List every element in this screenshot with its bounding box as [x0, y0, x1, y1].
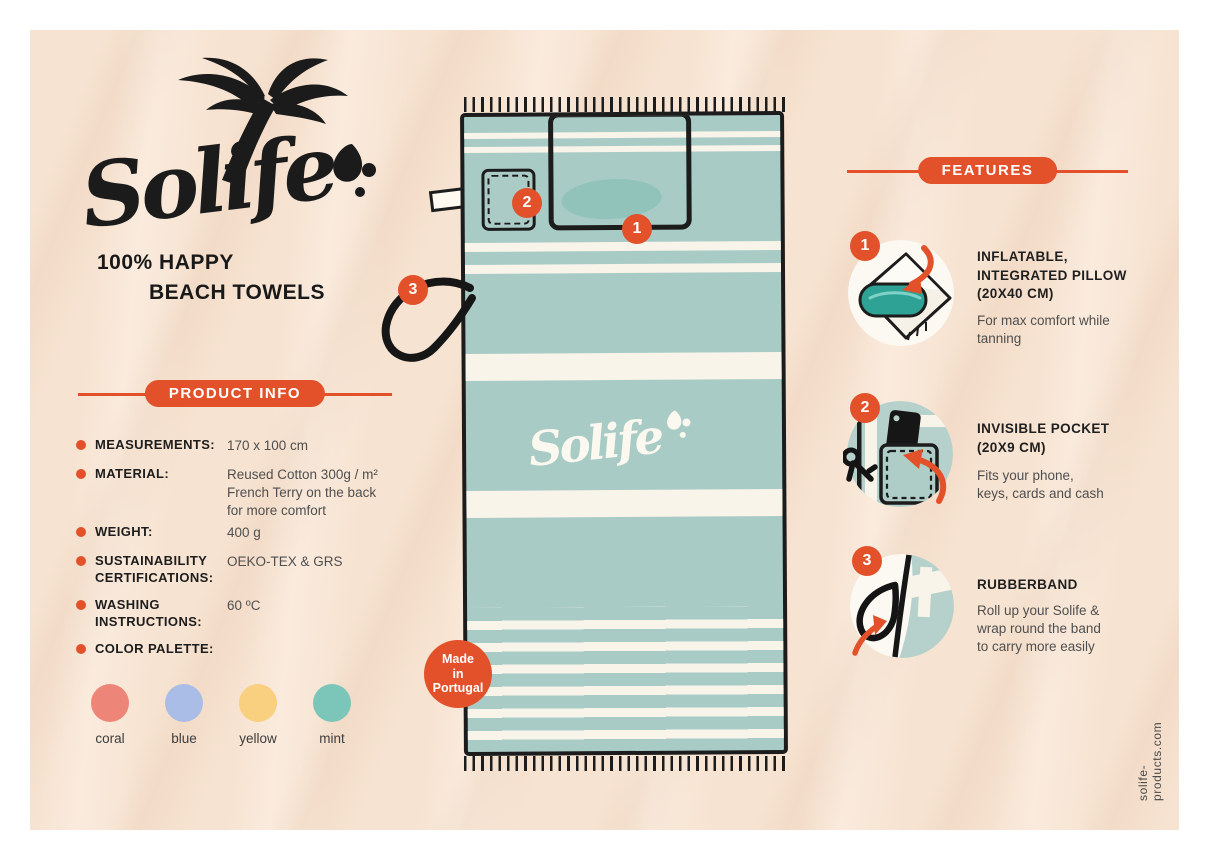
- swatch-dot: [239, 684, 277, 722]
- swatch-label: yellow: [239, 731, 277, 746]
- info-row-material: MATERIAL: Reused Cotton 300g / m² French…: [76, 466, 416, 519]
- info-row-sustainability: SUSTAINABILITY CERTIFICATIONS: OEKO-TEX …: [76, 553, 416, 587]
- swatch-label: blue: [171, 731, 197, 746]
- towel-stripe: [464, 489, 784, 518]
- info-label: WASHING INSTRUCTIONS:: [95, 597, 227, 631]
- towel-stripe: [464, 352, 784, 381]
- made-in-portugal-badge: Made in Portugal: [424, 640, 492, 708]
- feature-title: INVISIBLE POCKET (20X9 CM): [977, 420, 1172, 457]
- towel-brand-print: Solife: [520, 398, 735, 483]
- info-label: SUSTAINABILITY CERTIFICATIONS:: [95, 553, 227, 587]
- info-value: OEKO-TEX & GRS: [227, 553, 416, 571]
- info-row-measurements: MEASUREMENTS: 170 x 100 cm: [76, 437, 416, 455]
- swatch-dot: [165, 684, 203, 722]
- info-label: MATERIAL:: [95, 466, 227, 483]
- towel-badge-band: 3: [398, 275, 428, 305]
- water-drops-icon: [333, 144, 376, 197]
- feature-number-badge: 3: [852, 546, 882, 576]
- swatch-yellow: yellow: [223, 684, 293, 746]
- swatch-coral: coral: [75, 684, 145, 746]
- feature-number-badge: 1: [850, 231, 880, 261]
- product-info-pill: PRODUCT INFO: [145, 380, 325, 407]
- bullet-icon: [76, 644, 86, 654]
- bullet-icon: [76, 440, 86, 450]
- website-url: solife-products.com: [1136, 686, 1164, 801]
- feature-number-badge: 2: [850, 393, 880, 423]
- swatch-mint: mint: [297, 684, 367, 746]
- feature-description: Fits your phone, keys, cards and cash: [977, 467, 1172, 503]
- towel-bottom-stripes: [465, 606, 786, 752]
- infographic-canvas: Solife 100% HAPPY BEACH TOWELS PRODUCT I…: [0, 0, 1209, 860]
- info-label: COLOR PALETTE:: [95, 641, 227, 658]
- swatch-dot: [313, 684, 351, 722]
- logo-wordmark: Solife: [76, 114, 341, 248]
- made-line: in: [452, 667, 463, 682]
- info-row-weight: WEIGHT: 400 g: [76, 524, 416, 542]
- info-row-washing: WASHING INSTRUCTIONS: 60 ºC: [76, 597, 416, 631]
- brand-logo: Solife: [76, 52, 386, 252]
- towel-stripe: [463, 241, 783, 252]
- info-label: MEASUREMENTS:: [95, 437, 227, 454]
- bullet-icon: [76, 600, 86, 610]
- info-value: 400 g: [227, 524, 416, 542]
- towel-badge-pocket: 2: [512, 188, 542, 218]
- integrated-pillow-outline: [548, 112, 692, 231]
- pillow-shadow: [560, 174, 663, 223]
- tagline-line1: 100% HAPPY: [97, 251, 234, 275]
- info-label: WEIGHT:: [95, 524, 227, 541]
- bullet-icon: [76, 469, 86, 479]
- bullet-icon: [76, 556, 86, 566]
- info-value: Reused Cotton 300g / m² French Terry on …: [227, 466, 416, 519]
- towel-fringe-bottom: [464, 756, 785, 771]
- rubberband-icon: [374, 246, 478, 382]
- feature-description: Roll up your Solife & wrap round the ban…: [977, 602, 1172, 656]
- swatch-blue: blue: [149, 684, 219, 746]
- made-line: Made: [442, 652, 474, 667]
- info-value: 60 ºC: [227, 597, 416, 615]
- feature-title: INFLATABLE, INTEGRATED PILLOW (20X40 CM): [977, 248, 1172, 304]
- info-value: 170 x 100 cm: [227, 437, 416, 455]
- features-pill: FEATURES: [918, 157, 1058, 184]
- water-drops-icon: [666, 409, 692, 439]
- towel-stripe: [463, 263, 783, 274]
- tagline-line2: BEACH TOWELS: [149, 281, 325, 305]
- towel-wordmark: Solife: [526, 409, 665, 478]
- features-header: FEATURES: [847, 157, 1128, 185]
- towel-badge-pillow: 1: [622, 214, 652, 244]
- info-row-color-palette: COLOR PALETTE:: [76, 641, 416, 658]
- towel-fringe-top: [464, 97, 785, 112]
- swatch-label: coral: [95, 731, 124, 746]
- feature-title: RUBBERBAND: [977, 576, 1172, 595]
- swatch-label: mint: [319, 731, 345, 746]
- bullet-icon: [76, 527, 86, 537]
- product-info-header: PRODUCT INFO: [78, 380, 392, 408]
- swatch-dot: [91, 684, 129, 722]
- feature-description: For max comfort while tanning: [977, 312, 1172, 348]
- made-line: Portugal: [433, 681, 484, 696]
